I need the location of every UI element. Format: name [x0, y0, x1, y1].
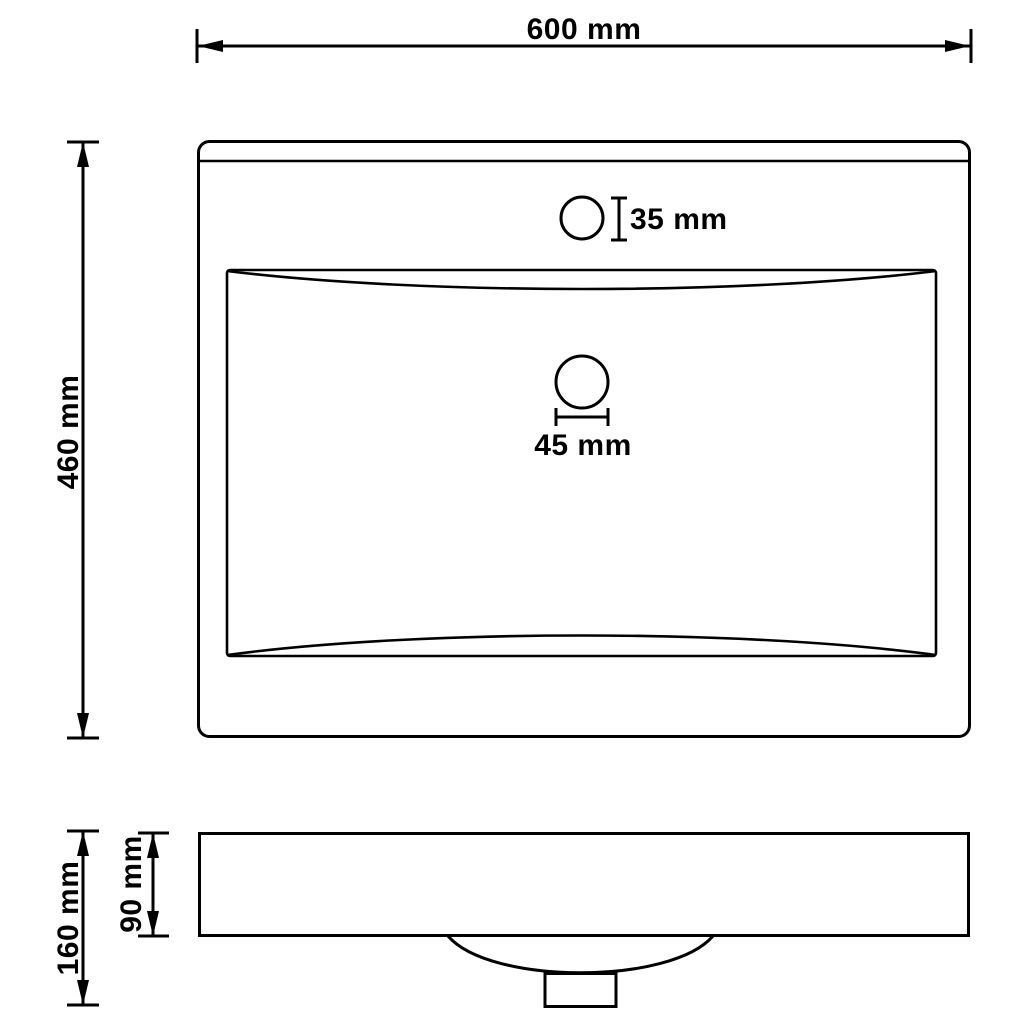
- side-view-drain-stub: [545, 974, 616, 1007]
- width-arrow-left: [198, 40, 223, 52]
- width-dimension-label: 600 mm: [527, 13, 642, 46]
- side-view: [200, 834, 969, 1007]
- basin-inner-rim-outline: [227, 270, 936, 656]
- dimension-total-height: 160 mm: [52, 831, 99, 1005]
- dimension-rim-height: 90 mm: [115, 833, 169, 936]
- rim-height-dimension-label: 90 mm: [115, 835, 148, 933]
- total-height-arrow-top: [77, 831, 89, 856]
- rim-height-arrow-bottom: [147, 911, 159, 936]
- drain-hole-dimension-label: 45 mm: [534, 429, 632, 462]
- drain-hole: [556, 356, 608, 408]
- width-arrow-right: [945, 40, 970, 52]
- faucet-hole: [561, 197, 603, 239]
- side-view-rim-outline: [200, 834, 969, 936]
- faucet-hole-dimension-label: 35 mm: [630, 203, 728, 236]
- total-height-dimension-label: 160 mm: [52, 861, 85, 976]
- washbasin-dimension-drawing: 600 mm 460 mm 35 mm: [0, 0, 1024, 1024]
- rim-height-arrow-top: [147, 833, 159, 858]
- depth-arrow-top: [77, 142, 89, 167]
- dimension-drain-hole: 45 mm: [534, 408, 632, 462]
- drawing-canvas: 600 mm 460 mm 35 mm: [0, 0, 1024, 1024]
- depth-arrow-bottom: [77, 713, 89, 738]
- top-view: 35 mm 45 mm: [199, 142, 970, 737]
- total-height-arrow-bottom: [77, 980, 89, 1005]
- basin-inner-bottom-curve: [227, 636, 936, 656]
- dimension-width: 600 mm: [197, 13, 971, 63]
- basin-inner-top-curve: [227, 271, 936, 289]
- dimension-depth: 460 mm: [52, 142, 99, 738]
- depth-dimension-label: 460 mm: [52, 375, 85, 490]
- dimension-faucet-hole: 35 mm: [611, 198, 728, 240]
- side-view-bowl-curve: [448, 936, 713, 973]
